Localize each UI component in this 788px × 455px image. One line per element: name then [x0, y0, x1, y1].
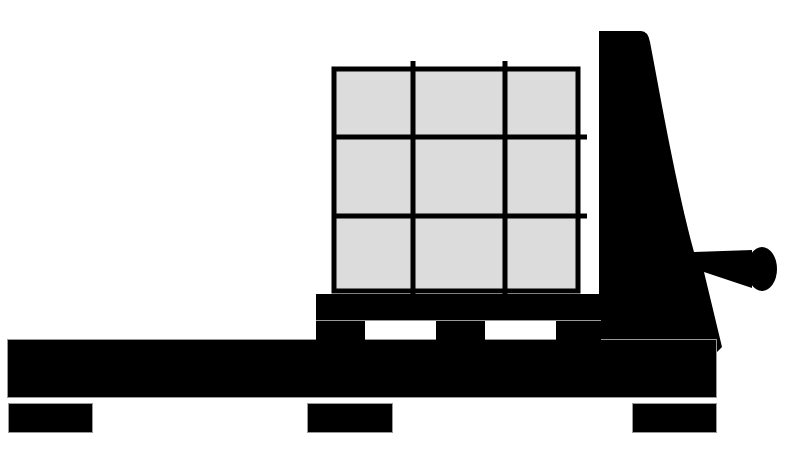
- pallet-truck-illustration: [0, 0, 788, 455]
- box-stack-outline: [334, 69, 578, 291]
- wheel-block-left: [9, 404, 93, 433]
- pallet-block-middle: [436, 320, 485, 341]
- wheel-block-middle: [308, 404, 393, 433]
- pallet: [316, 294, 601, 341]
- pallet-deck: [316, 294, 601, 320]
- pallet-block-right: [556, 320, 601, 341]
- wheel-block-right: [633, 404, 717, 433]
- pallet-block-left: [316, 320, 365, 341]
- fork-base-bar: [8, 340, 717, 398]
- pallet-truck-clipart-svg: [0, 0, 788, 455]
- handle-knob: [747, 247, 777, 291]
- cargo-box-stack: [332, 61, 587, 297]
